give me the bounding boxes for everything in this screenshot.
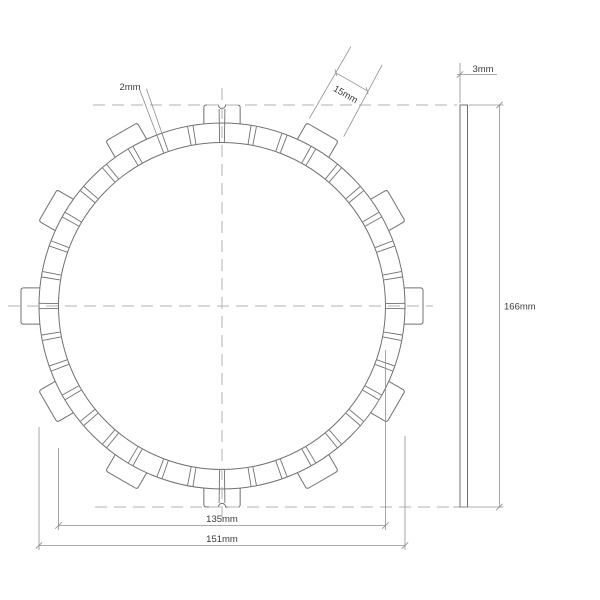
- pad-slot-edge: [224, 109, 225, 142]
- dim-ext-tab-width: [309, 47, 351, 119]
- pad-slot-edge: [219, 470, 220, 503]
- pad-slot-edge: [219, 109, 220, 142]
- dim-label-tab-width: 15mm: [331, 83, 359, 106]
- side-view-plate: [460, 105, 468, 507]
- dim-label-slot-width: 2mm: [119, 82, 140, 93]
- pad-slot-edge: [224, 470, 225, 503]
- dim-label-thickness: 3mm: [472, 64, 493, 75]
- dim-label-inner-diameter: 135mm: [206, 514, 238, 525]
- technical-drawing: 2mm 15mm 3mm 166mm 135mm 151mm: [0, 0, 600, 600]
- drawing-page: 2mm 15mm 3mm 166mm 135mm 151mm: [0, 0, 600, 600]
- dim-label-outer-diameter: 151mm: [206, 534, 238, 545]
- dim-label-overall-diameter: 166mm: [504, 302, 536, 313]
